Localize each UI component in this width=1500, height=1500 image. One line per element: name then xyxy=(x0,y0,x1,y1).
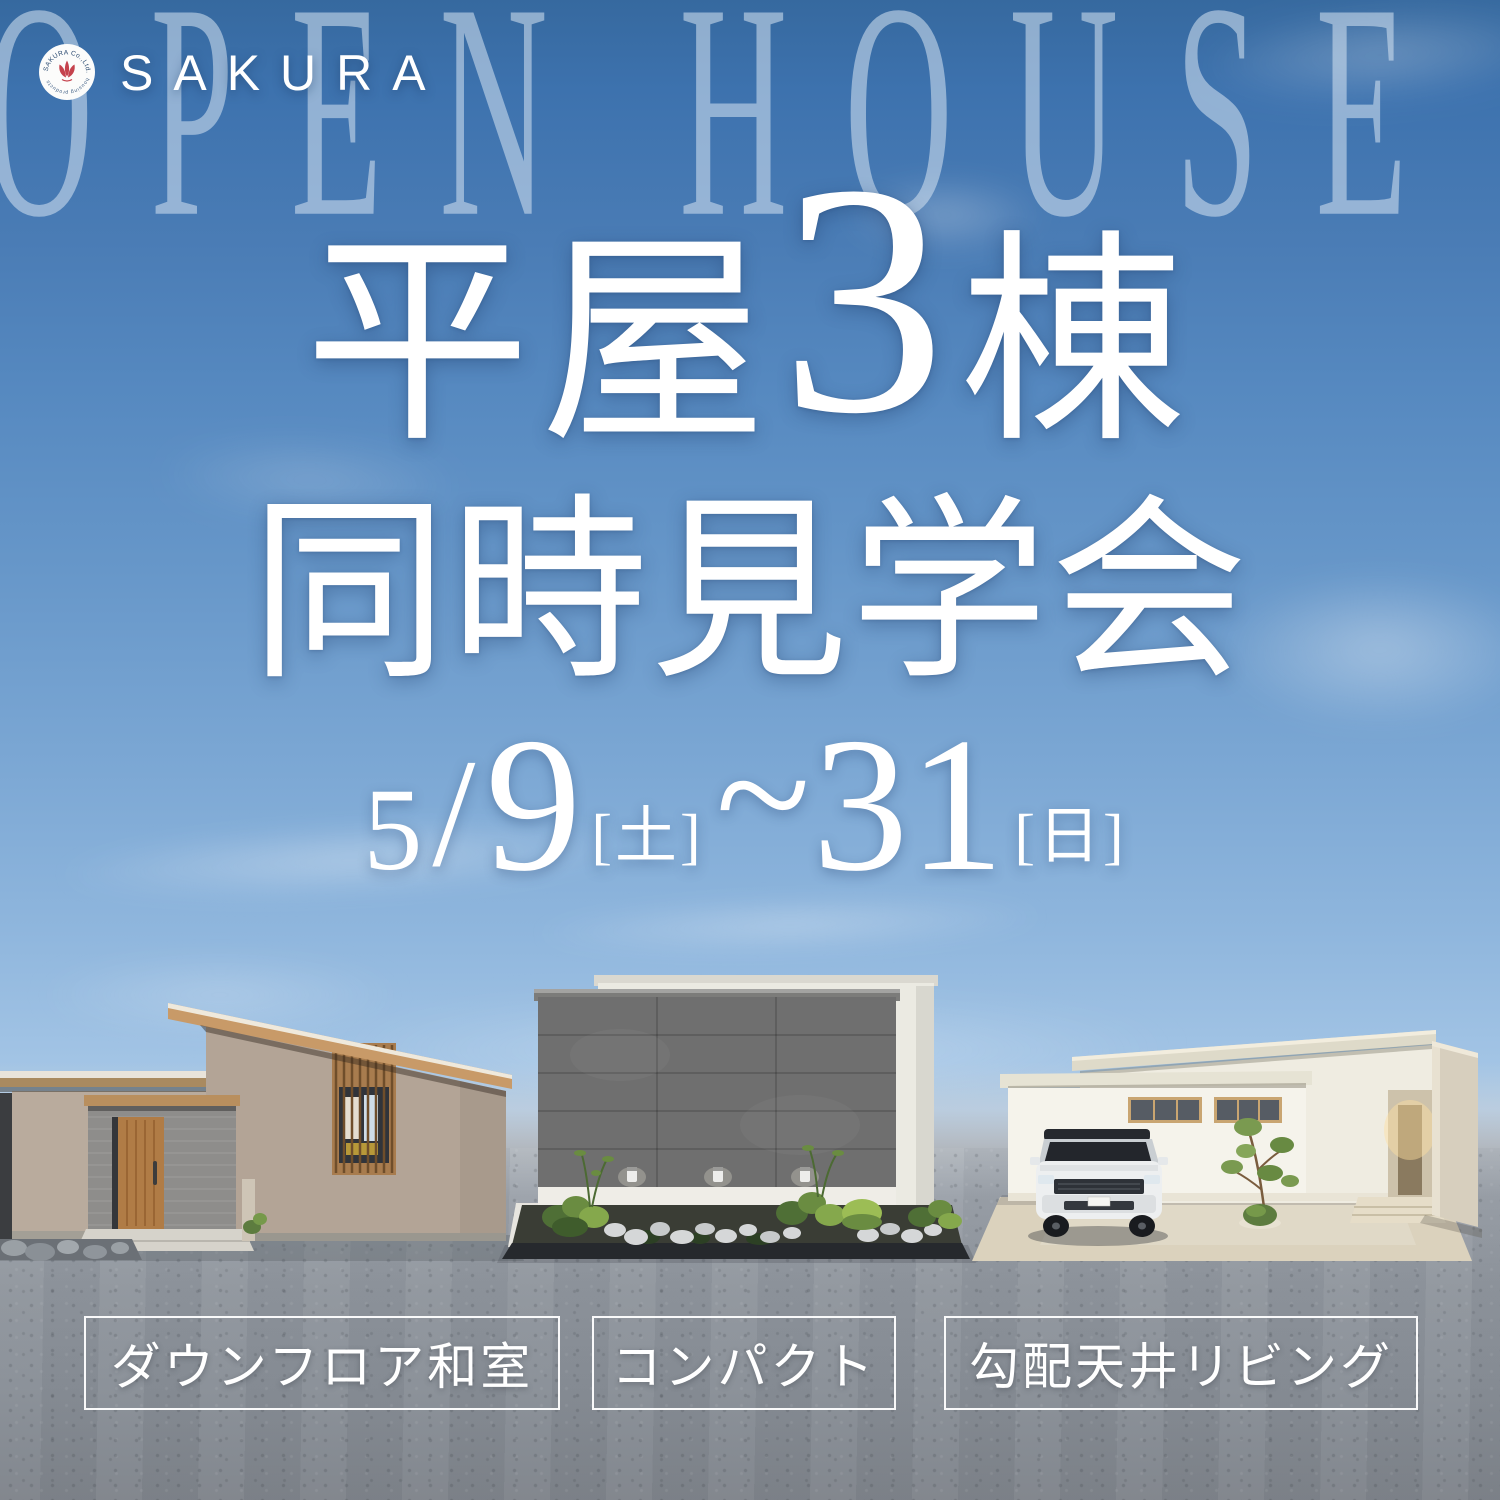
rock-garden xyxy=(0,1239,142,1261)
date-end-day: 31 xyxy=(812,698,1004,911)
title-line1-prefix: 平屋 xyxy=(304,219,776,469)
sakura-badge-logo: SAKURA Co.,Ltd. housing products xyxy=(38,43,96,101)
house-3-white-mono-pitch xyxy=(972,1030,1482,1261)
main-title-line1: 平屋3棟 xyxy=(0,145,1500,475)
date-slash: / xyxy=(432,727,475,899)
date-start-weekday: [土] xyxy=(591,803,703,871)
title-line1-suffix: 棟 xyxy=(960,219,1196,469)
company-name: SAKURA xyxy=(120,42,446,102)
house-1-shed-roof xyxy=(0,1003,524,1261)
white-suv xyxy=(1028,1129,1168,1246)
date-range-tilde: ~ xyxy=(716,697,811,891)
main-title-line2: 同時見学会 xyxy=(0,495,1500,693)
title-line1-number: 3 xyxy=(781,117,956,482)
feature-box-sloped-ceiling-living: 勾配天井リビング xyxy=(944,1316,1418,1410)
date-start-day: 9 xyxy=(485,698,581,911)
feature-box-compact: コンパクト xyxy=(592,1316,896,1410)
date-end-weekday: [日] xyxy=(1014,803,1126,871)
date-month: 5 xyxy=(363,764,422,895)
house-renderings xyxy=(0,945,1500,1500)
open-house-poster: OPEN HOUSE xyxy=(0,0,1500,1500)
house-2-gray-box xyxy=(497,975,976,1263)
event-date: 5/9[土]~31[日] xyxy=(0,709,1500,901)
entrance xyxy=(76,1095,254,1251)
brand-header: SAKURA Co.,Ltd. housing products SAKURA xyxy=(38,42,446,102)
feature-box-downfloor-washitsu: ダウンフロア和室 xyxy=(84,1316,560,1410)
